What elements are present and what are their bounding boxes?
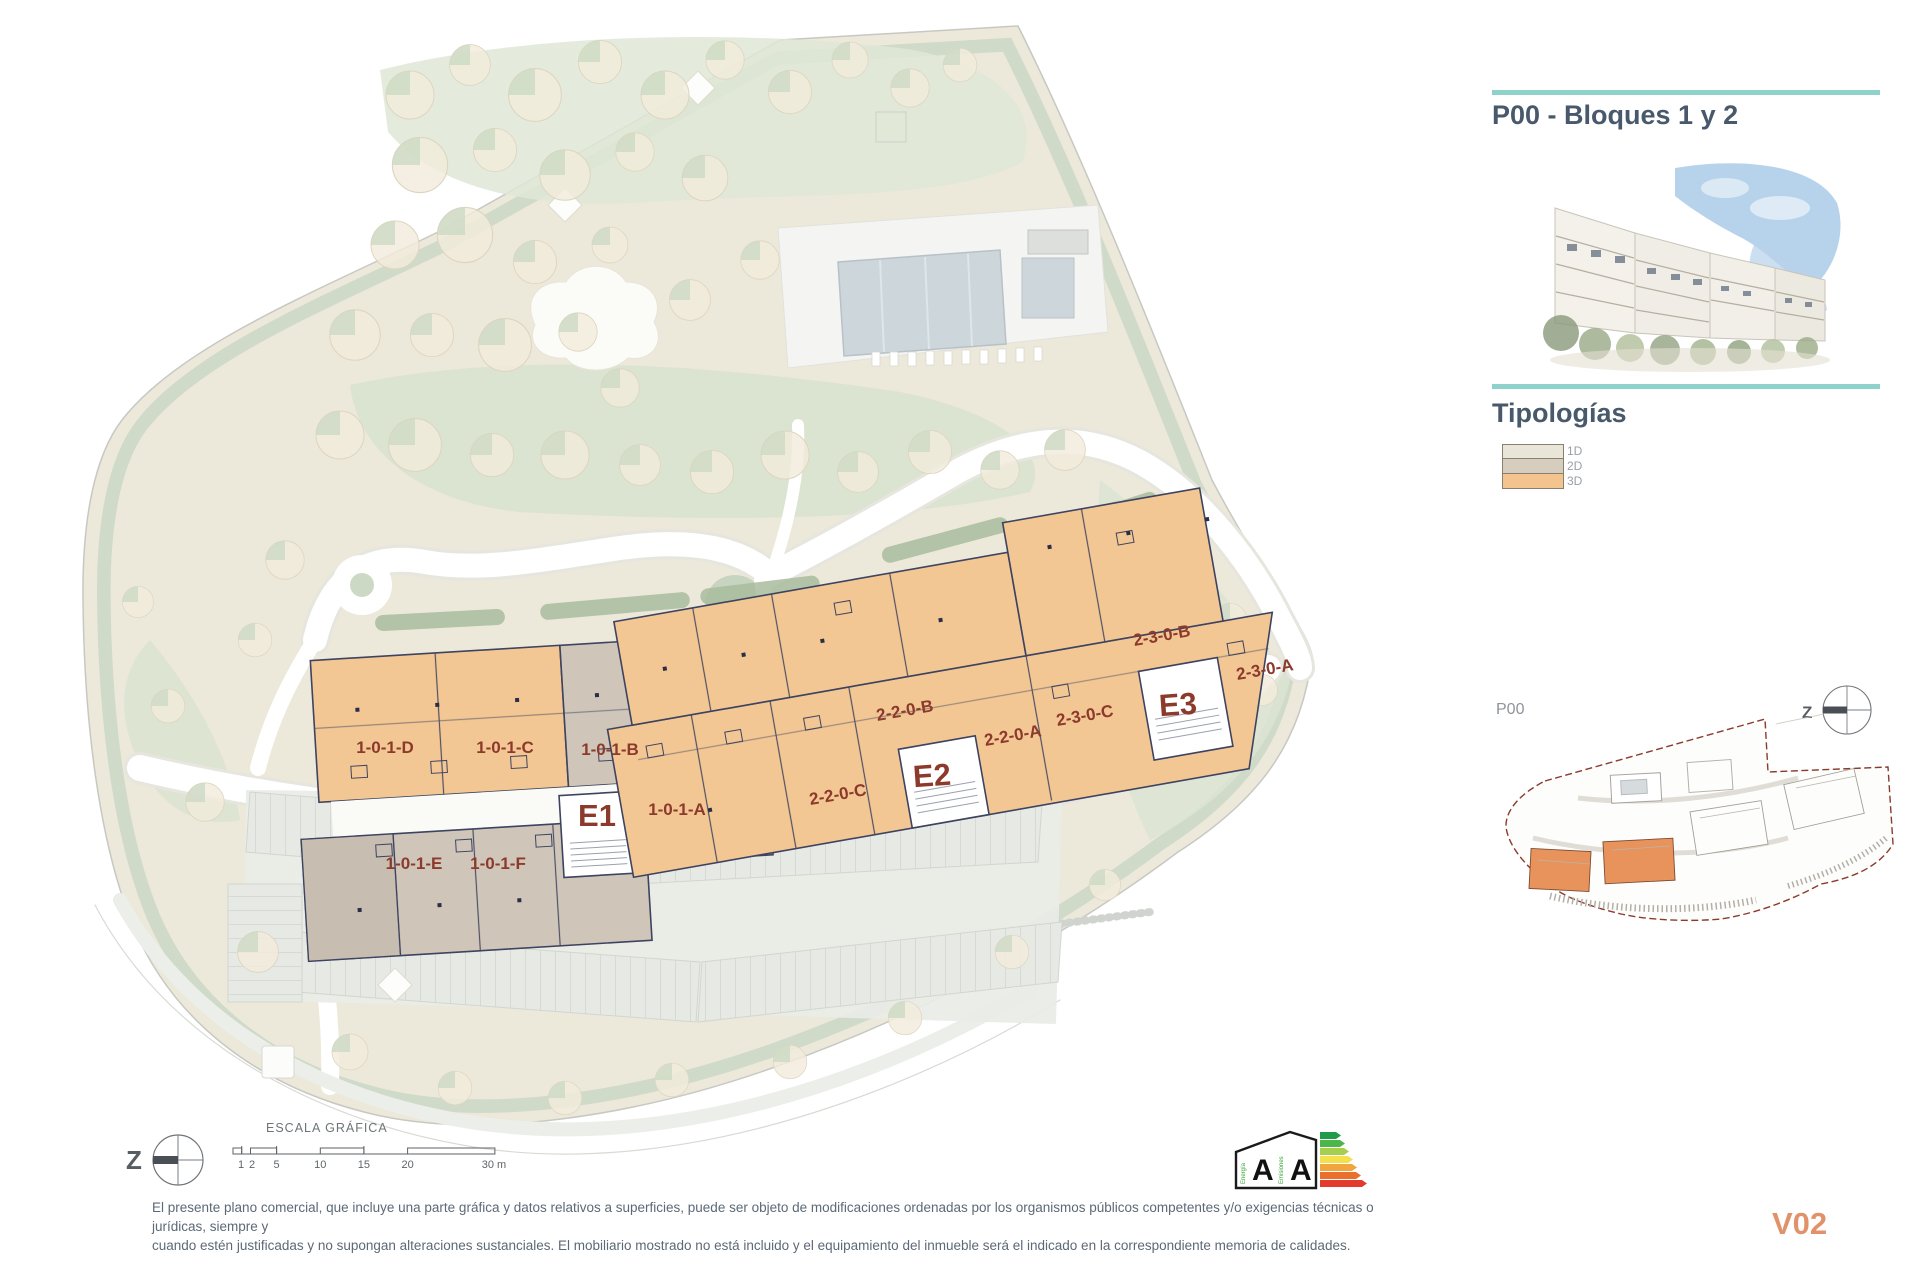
emissions-rating-letter: A: [1290, 1154, 1312, 1187]
plan-sheet: 1-0-1-D 1-0-1-C 1-0-1-B 1-0-1-A 1-0-1-E …: [0, 0, 1920, 1280]
energy-rating-letter: A: [1252, 1154, 1274, 1187]
top-accent-rule: [1492, 90, 1880, 95]
legend-label-3d: 3D: [1567, 474, 1582, 489]
section-accent-rule: [1492, 384, 1880, 389]
svg-text:Z: Z: [1802, 703, 1812, 722]
svg-text:30 m: 30 m: [482, 1159, 506, 1171]
disclaimer-line-2: cuando estén justificadas y no supongan …: [152, 1238, 1350, 1253]
energy-rating-label: Energía A Emisiones A: [1228, 1126, 1378, 1196]
svg-text:20: 20: [401, 1159, 413, 1171]
site-plan: 1-0-1-D 1-0-1-C 1-0-1-B 1-0-1-A 1-0-1-E …: [0, 0, 1330, 1280]
north-compass: Z: [118, 1122, 218, 1200]
scale-bar: ESCALA GRÁFICA 1 2 5 10 15 20 30 m: [228, 1118, 528, 1173]
version-badge: V02: [1772, 1206, 1827, 1242]
core-label-e1: E1: [578, 798, 616, 833]
energy-axis-label: Energía: [1241, 1162, 1247, 1184]
legend-label-2d: 2D: [1567, 459, 1582, 474]
svg-text:10: 10: [314, 1159, 326, 1171]
tipologias-heading: Tipologías: [1492, 398, 1627, 429]
legend-item-3d: 3D: [1502, 474, 1582, 489]
disclaimer-line-1: El presente plano comercial, que incluye…: [152, 1200, 1374, 1234]
legend-item-2d: 2D: [1502, 459, 1582, 474]
unit-label-1-0-1-d: 1-0-1-D: [356, 738, 414, 757]
emissions-axis-label: Emisiones: [1279, 1156, 1285, 1184]
legend-item-1d: 1D: [1502, 444, 1582, 459]
energy-scale-bars-icon: [1320, 1132, 1367, 1187]
svg-text:2: 2: [249, 1159, 255, 1171]
tipologias-legend: 1D 2D 3D: [1502, 444, 1582, 489]
scale-tick-labels: 1 2 5 10 15 20 30 m: [238, 1159, 506, 1171]
key-plan: P00 Z: [1488, 678, 1918, 938]
core-label-e3: E3: [1158, 686, 1198, 724]
compass-letter: Z: [126, 1145, 142, 1175]
scale-bar-title: ESCALA GRÁFICA: [266, 1120, 388, 1135]
unit-label-1-0-1-b: 1-0-1-B: [581, 740, 639, 759]
keyplan-compass-icon: Z: [1802, 686, 1871, 734]
keyplan-level-label: P00: [1496, 701, 1525, 718]
page-title: P00 - Bloques 1 y 2: [1492, 100, 1738, 131]
unit-label-1-0-1-a: 1-0-1-A: [648, 800, 706, 819]
compass-needle: [153, 1156, 178, 1164]
svg-text:5: 5: [274, 1159, 280, 1171]
legend-label-1d: 1D: [1567, 444, 1582, 459]
unit-label-1-0-1-c: 1-0-1-C: [476, 738, 534, 757]
disclaimer-text: El presente plano comercial, que incluye…: [152, 1199, 1422, 1256]
unit-label-1-0-1-e: 1-0-1-E: [386, 854, 443, 873]
building-rendering-image: [1525, 148, 1855, 378]
unit-label-1-0-1-f: 1-0-1-F: [470, 854, 526, 873]
legend-swatch-3d: [1502, 474, 1564, 489]
core-label-e2: E2: [912, 757, 952, 795]
svg-text:1: 1: [238, 1159, 244, 1171]
legend-swatch-1d: [1502, 444, 1564, 459]
legend-swatch-2d: [1502, 459, 1564, 474]
svg-text:15: 15: [358, 1159, 370, 1171]
